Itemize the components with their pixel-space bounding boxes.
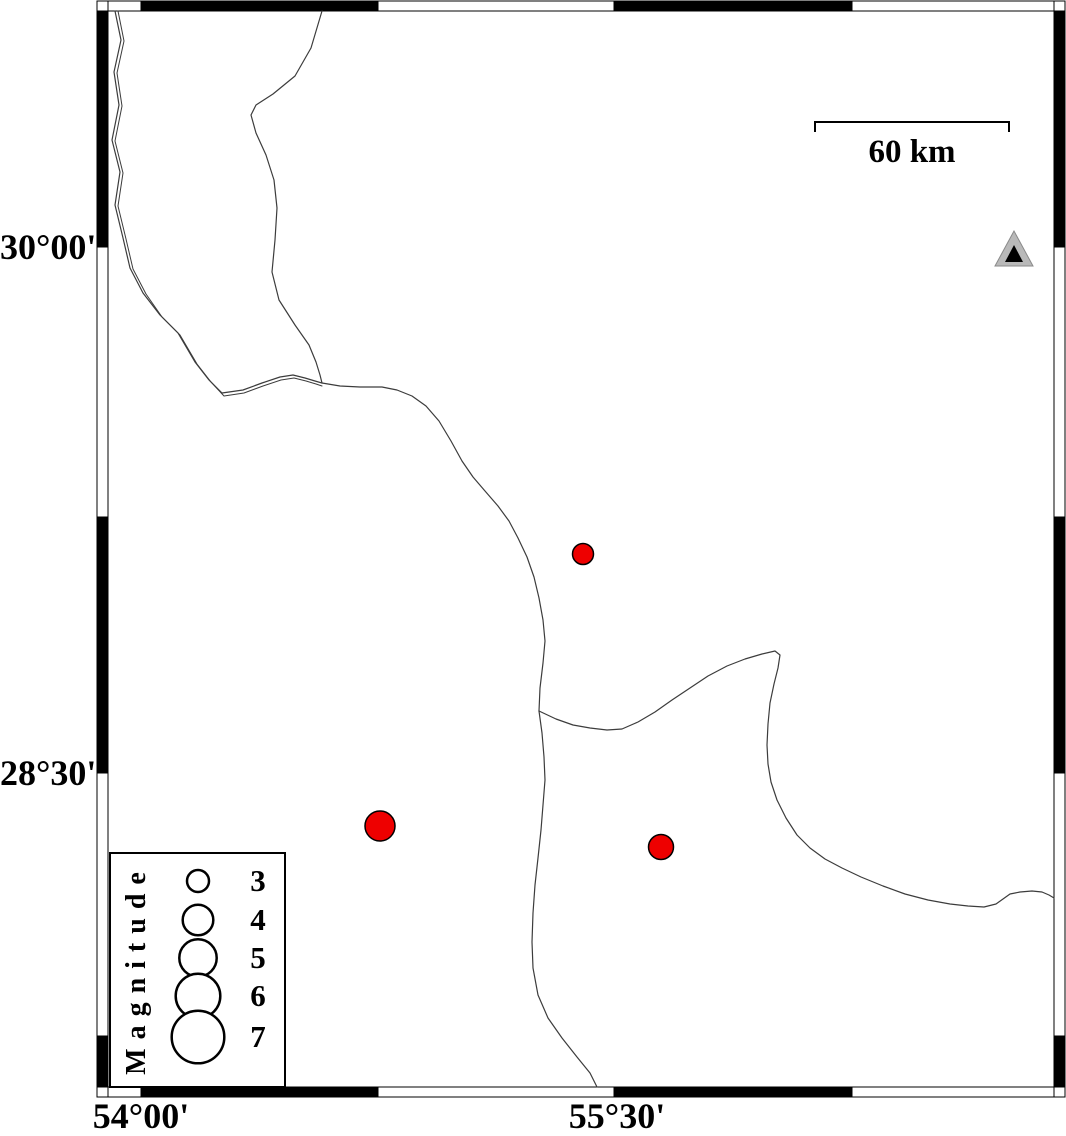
lon-label-55-30: 55°30' [537, 1098, 697, 1134]
lat-label-28-30: 28°30' [0, 755, 90, 791]
boundary-northwest-strand-b [115, 11, 322, 396]
frame-corner [1054, 1087, 1065, 1097]
frame-band-top [378, 1, 614, 11]
legend-circle-3 [187, 870, 209, 892]
earthquake-marker [573, 544, 594, 565]
lat-label-30-00: 30°00' [0, 229, 90, 265]
boundary-northwest-strand-a [112, 11, 322, 393]
legend-circle-4 [183, 905, 214, 936]
legend-label-4: 4 [250, 902, 266, 938]
frame-band-left [97, 1036, 108, 1087]
earthquake-marker [649, 835, 674, 860]
frame-band-left [97, 773, 108, 1036]
frame-band-right [1054, 773, 1065, 1036]
boundary-north [251, 11, 322, 383]
lon-label-54-00: 54°00' [61, 1098, 221, 1134]
scale-bar-label: 60 km [812, 134, 1012, 171]
frame-band-top [141, 1, 378, 11]
frame-band-right [1054, 1036, 1065, 1087]
frame-band-bottom [852, 1087, 1054, 1097]
legend-circle-7 [172, 1011, 225, 1064]
frame-band-left [97, 11, 108, 247]
legend-title: Magnitude [121, 863, 153, 1075]
scale-bar [815, 122, 1009, 132]
frame-band-top [614, 1, 852, 11]
frame-corner [1054, 1, 1065, 11]
frame-corner [97, 1, 108, 11]
boundary-east [539, 651, 1054, 907]
legend-label-5: 5 [250, 940, 266, 976]
frame-band-left [97, 517, 108, 773]
frame-band-right [1054, 247, 1065, 517]
earthquake-marker [365, 811, 395, 841]
legend-label-7: 7 [250, 1019, 266, 1055]
boundary-south [532, 711, 597, 1087]
legend-label-3: 3 [250, 863, 266, 899]
seismicity-map: 30°00' 28°30' 54°00' 55°30' 60 km Magnit… [0, 0, 1066, 1136]
frame-band-right [1054, 517, 1065, 773]
legend-circle-5 [179, 939, 216, 976]
frame-band-top [852, 1, 1054, 11]
legend-label-6: 6 [250, 978, 266, 1014]
frame-band-left [97, 247, 108, 517]
frame-band-right [1054, 11, 1065, 247]
boundary-central [322, 383, 545, 711]
frame-band-top [108, 1, 141, 11]
